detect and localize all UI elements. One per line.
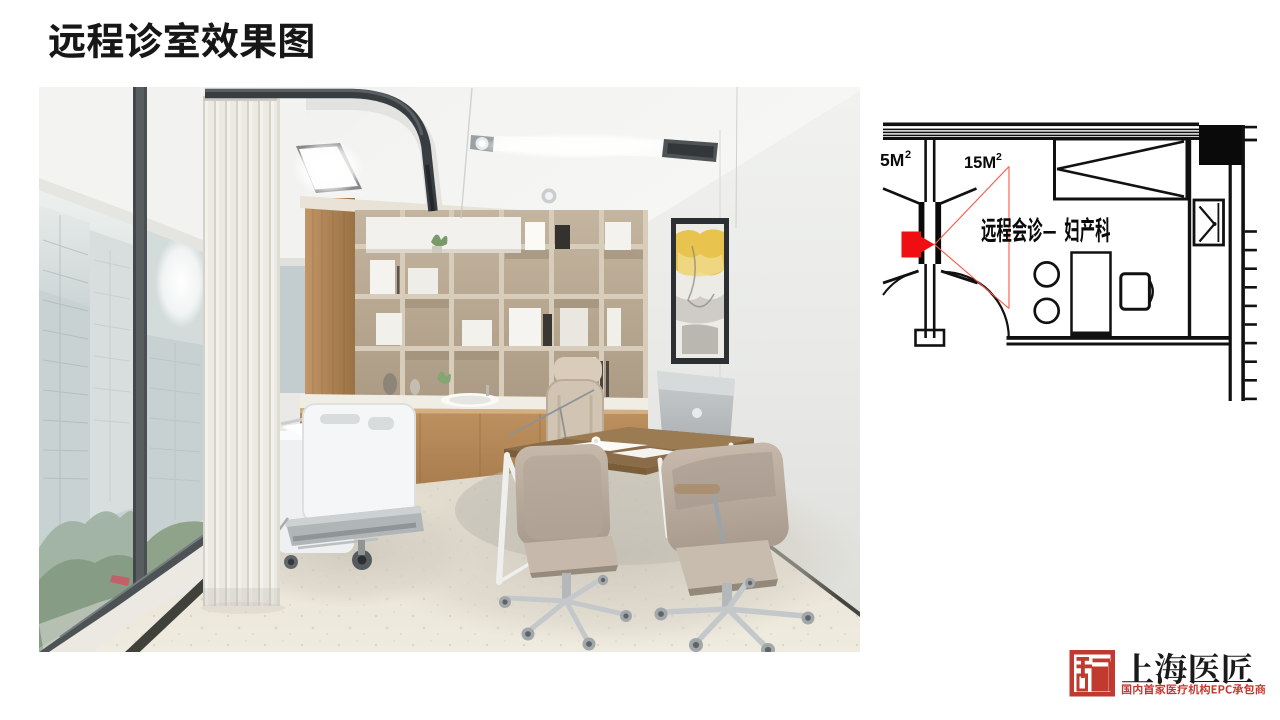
svg-text:2: 2 xyxy=(996,151,1002,163)
svg-text:2: 2 xyxy=(905,149,911,161)
svg-text:5M: 5M xyxy=(880,150,904,170)
svg-text:15M: 15M xyxy=(964,154,996,172)
